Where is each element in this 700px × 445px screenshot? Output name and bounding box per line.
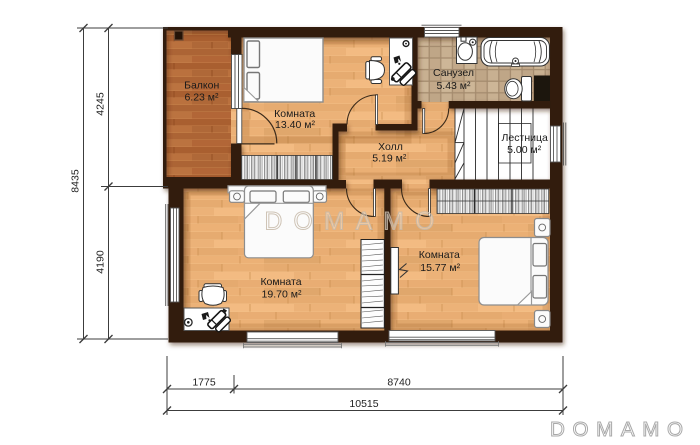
- svg-text:Комната: Комната: [274, 108, 315, 120]
- svg-text:1775: 1775: [192, 377, 216, 389]
- svg-text:8435: 8435: [70, 169, 82, 193]
- svg-text:Комната: Комната: [419, 249, 460, 261]
- svg-text:13.40 м²: 13.40 м²: [275, 119, 315, 131]
- svg-text:Лестница: Лестница: [502, 132, 548, 144]
- svg-text:19.70 м²: 19.70 м²: [262, 289, 302, 301]
- svg-text:5.43 м²: 5.43 м²: [436, 80, 471, 92]
- svg-text:10515: 10515: [349, 398, 378, 410]
- svg-text:Балкон: Балкон: [184, 80, 219, 92]
- svg-text:6.23 м²: 6.23 м²: [184, 92, 219, 104]
- svg-text:Санузел: Санузел: [433, 67, 474, 79]
- svg-text:5.19 м²: 5.19 м²: [372, 152, 407, 164]
- svg-text:Холл: Холл: [378, 141, 403, 153]
- svg-text:4190: 4190: [95, 250, 107, 274]
- svg-text:DOMAMO: DOMAMO: [264, 209, 445, 236]
- svg-text:4245: 4245: [95, 92, 107, 116]
- svg-text:DOMAMO: DOMAMO: [550, 418, 691, 441]
- svg-text:15.77 м²: 15.77 м²: [420, 262, 460, 274]
- svg-text:8740: 8740: [387, 377, 411, 389]
- svg-text:Комната: Комната: [260, 276, 301, 288]
- svg-text:5.00 м²: 5.00 м²: [507, 144, 542, 156]
